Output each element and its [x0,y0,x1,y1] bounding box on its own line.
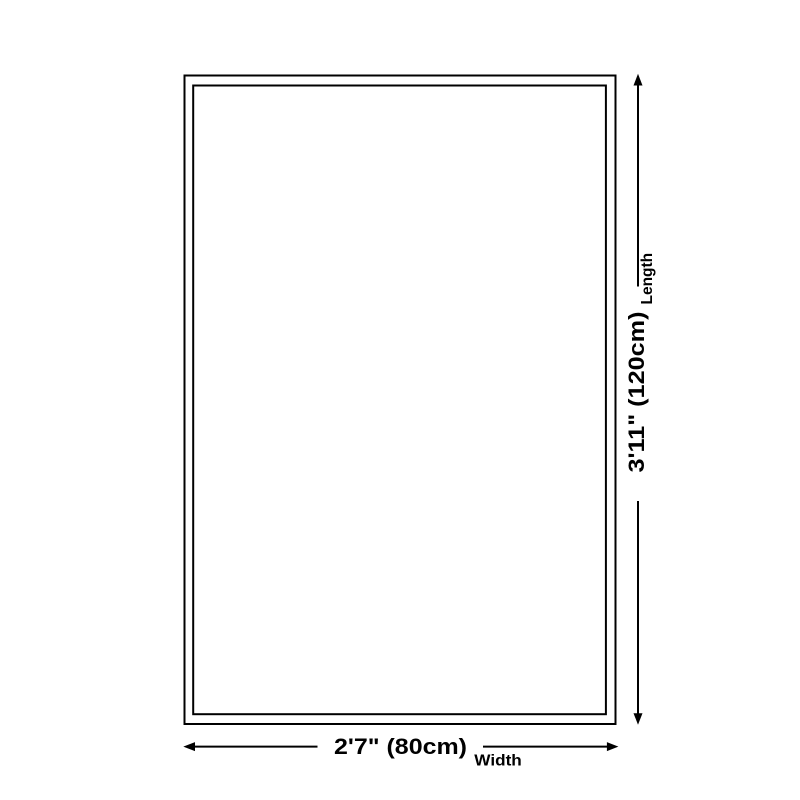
svg-text:Width: Width [474,753,522,770]
svg-text:2'7" (80cm): 2'7" (80cm) [334,734,467,759]
svg-text:3'11" (120cm): 3'11" (120cm) [624,312,649,473]
svg-text:Length: Length [639,253,656,305]
